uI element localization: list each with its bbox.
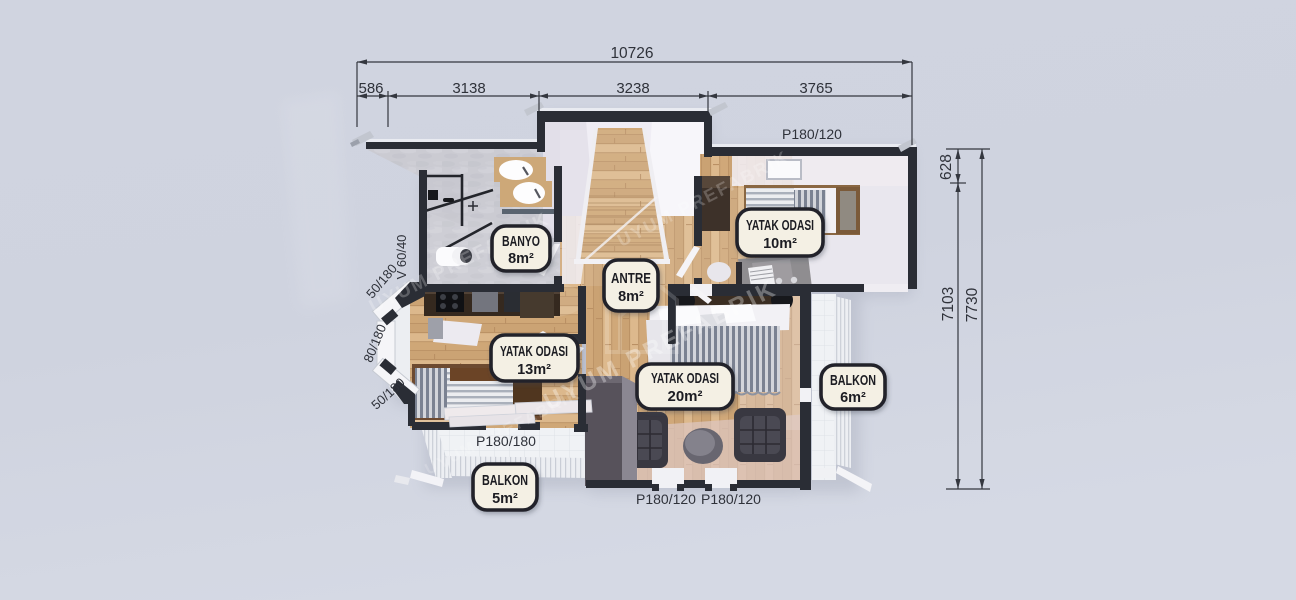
- svg-text:628: 628: [938, 154, 955, 180]
- svg-text:BALKON: BALKON: [482, 473, 528, 489]
- svg-text:3238: 3238: [616, 80, 649, 97]
- svg-text:YATAK ODASI: YATAK ODASI: [651, 370, 719, 387]
- svg-text:8m²: 8m²: [618, 289, 644, 305]
- svg-text:P180/120: P180/120: [636, 491, 696, 507]
- svg-text:6m²: 6m²: [840, 390, 866, 406]
- svg-text:3138: 3138: [452, 80, 485, 97]
- svg-text:YATAK ODASI: YATAK ODASI: [746, 218, 814, 234]
- svg-text:20m²: 20m²: [667, 388, 702, 405]
- svg-text:3765: 3765: [799, 80, 832, 97]
- svg-text:10726: 10726: [610, 45, 653, 62]
- svg-text:YATAK ODASI: YATAK ODASI: [500, 344, 568, 360]
- svg-text:7730: 7730: [964, 287, 981, 322]
- svg-text:BANYO: BANYO: [502, 234, 540, 250]
- svg-text:10m²: 10m²: [763, 236, 797, 252]
- svg-text:8m²: 8m²: [508, 251, 534, 267]
- svg-text:586: 586: [358, 80, 383, 97]
- svg-text:P180/120: P180/120: [701, 491, 761, 507]
- svg-text:BALKON: BALKON: [830, 373, 876, 389]
- svg-text:P180/120: P180/120: [782, 126, 842, 142]
- svg-text:ANTRE: ANTRE: [611, 271, 651, 287]
- svg-text:5m²: 5m²: [492, 491, 518, 507]
- svg-text:13m²: 13m²: [517, 362, 551, 378]
- svg-text:P180/180: P180/180: [476, 433, 536, 449]
- svg-text:7103: 7103: [940, 287, 957, 321]
